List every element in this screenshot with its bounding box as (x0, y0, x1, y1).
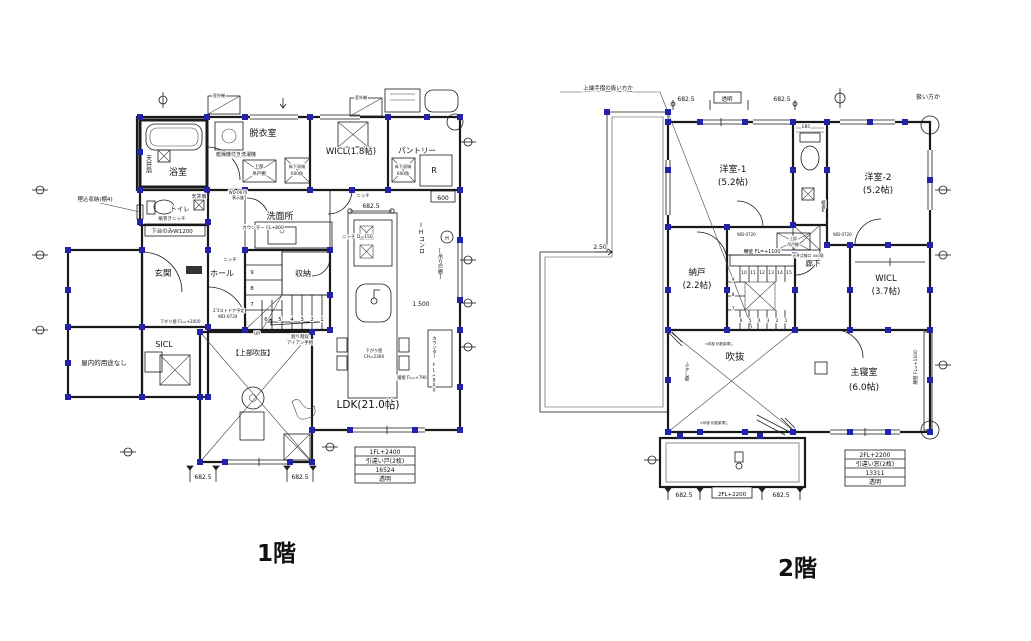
plan-drawing: 1FL+2400 引違い戸(2枚) 16524 透明 浴室 天井扇 脱衣室 乾燥… (0, 0, 1031, 641)
caption-floor2: 2階 (778, 549, 817, 583)
note-counter-kitchen: カウンター FL+800 (431, 336, 436, 394)
svg-text:14: 14 (777, 270, 783, 276)
label-wicl2-name: WICL (875, 274, 897, 284)
svg-text:5: 5 (278, 317, 282, 323)
kitchen-sink (356, 284, 391, 322)
dim-682-top2f-left: 682.5 (677, 96, 694, 103)
label-west1-name: 洋室-1 (720, 163, 747, 175)
dim-682-bot2f-right: 682.5 (772, 492, 789, 499)
label-hall: ホール (210, 269, 234, 278)
note-floor-storage-3: 床下収納 (395, 163, 412, 170)
svg-text:15: 15 (786, 270, 792, 276)
label-wicl-1f: WICL(1.8帖) (326, 146, 376, 157)
note-hanging-wall-entrance: 下がり壁 FL=+2000 (160, 318, 201, 325)
note-stair-rail: アイアン手摺 (287, 339, 314, 346)
dim-682-bottom-right: 682.5 (291, 474, 308, 481)
note-upper-cab-2: 吊戸棚 (252, 170, 266, 177)
entrance-step (186, 266, 202, 274)
note-hanging-shelf: [吊り戸棚] (437, 248, 443, 280)
note-ih-stove: IHコンロ (418, 222, 425, 254)
svg-text:1: 1 (320, 317, 324, 323)
window-table-2f-row2: 引違い窓(2枚) (856, 460, 895, 468)
label-ldk: LDK(21.0帖) (337, 398, 400, 411)
floor2-plan: 2FL+2200 引違い窓(2枚) 13311 透明 洋室-1 (5.2帖) 洋… (540, 84, 951, 500)
dim-682-top2f-right: 682.5 (773, 96, 790, 103)
label-master-name: 主寝室 (850, 366, 877, 378)
window-table-2f: 2FL+2200 引違い窓(2枚) 13311 透明 (845, 450, 905, 486)
dim-682-top-1f: 682.5 (362, 203, 379, 210)
window-table-1f-row3: 16524 (375, 467, 394, 474)
note-slope: 2.50 (593, 244, 607, 251)
svg-text:9: 9 (732, 277, 735, 283)
svg-text:3: 3 (300, 317, 304, 323)
label-dressing: 脱衣室 (249, 127, 276, 139)
note-hood: H (445, 236, 449, 242)
note-upper-cab2f-2: 吊戸棚 (787, 242, 799, 247)
note-niche-hall: ニッチ (223, 257, 237, 263)
note-handling: 扱い方か (916, 93, 940, 101)
dim-marks-1f (187, 191, 455, 482)
svg-text:9: 9 (250, 270, 254, 276)
washer-pan (215, 122, 243, 150)
window-table-1f-row4: 透明 (379, 475, 391, 483)
label-void-2f: 吹抜 (725, 351, 745, 363)
door-arc-west1 (737, 201, 763, 227)
label-ceiling-fan-toilet: 天井扇 (191, 193, 206, 200)
door-arc-nando (697, 232, 727, 262)
label-toilet-1f: トイレ (170, 205, 190, 213)
window-table-1f-row1: 1FL+2400 (370, 449, 401, 456)
label-washroom: 洗面所 (266, 210, 293, 222)
svg-text:13: 13 (768, 270, 774, 276)
label-west2-size: (5.2帖) (863, 184, 893, 196)
note-low-wall-790: 腰壁 FL=+790 (397, 374, 427, 381)
svg-text:8: 8 (732, 292, 735, 298)
note-inspection: 天井点検口 450角 (792, 253, 823, 258)
dim-682-bot2f-left: 682.5 (675, 492, 692, 499)
stairs-1f (245, 258, 330, 330)
svg-text:4: 4 (290, 317, 294, 323)
label-no-use: 屋内的用途なし (81, 358, 127, 367)
window-table-1f-row2: 引違い戸(2枚) (366, 457, 405, 465)
toilet-tank-2f (800, 133, 820, 142)
note-door-plan-1: 2'3ストドア予定 (213, 307, 245, 314)
note-hanging-wall-k2: CH=2300 (364, 354, 385, 359)
note-wd0720-a: WD-0720 (737, 232, 756, 237)
svg-text:6: 6 (740, 318, 743, 324)
stair-numbers-2f: 10 11 12 13 14 15 9 8 7 6 5 4 3 2 1 (732, 270, 792, 324)
note-paper-holder: 紙巻K (820, 199, 826, 214)
note-door-lock-2: 表示錠 (232, 194, 244, 200)
note-recessed-storage: 埋込収納(棚4) (77, 195, 112, 203)
label-sicl: SICL (155, 340, 173, 349)
note-door-plan-2: WD-0724 (218, 314, 238, 319)
window-table-1f: 1FL+2400 引違い戸(2枚) 16524 透明 (355, 447, 415, 483)
dim-600: 600 (437, 195, 449, 202)
leader-line (560, 92, 752, 328)
dim-1500: 1.500 (412, 301, 429, 308)
label-fridge: R (431, 166, 437, 175)
note-stair-type: 廻り階段 (291, 333, 309, 340)
door-arc-west2 (855, 219, 881, 245)
label-wicl2-size: (3.7帖) (872, 286, 901, 297)
note-leader: 上端手摺の扱い方か (583, 84, 633, 92)
svg-text:8: 8 (250, 286, 254, 292)
svg-text:7: 7 (732, 306, 735, 312)
note-lower-cabinet: 下台のみW1200 (151, 227, 193, 235)
hall-door-arc (208, 287, 246, 325)
note-outdoor-unit-2: 室外機 (355, 94, 367, 100)
svg-text:10: 10 (741, 270, 747, 276)
label-corridor: 廊下 (806, 258, 821, 268)
label-west2-name: 洋室-2 (865, 171, 892, 183)
label-entrance: 玄関 (154, 268, 171, 279)
label-nando-size: (2.2帖) (683, 280, 712, 291)
note-paper-niche: 紙巻きニッチ (159, 215, 186, 222)
note-counter-wash: カウンター FL+800 (242, 224, 284, 231)
note-fl2200-box: 2FL+2200 (718, 492, 747, 498)
note-outdoor-unit-1: 室外機 (213, 92, 225, 98)
entrance-porch (68, 250, 142, 397)
label-storage-1f: 収納 (295, 268, 311, 278)
svg-text:7: 7 (250, 302, 254, 308)
kitchen-island (348, 213, 397, 398)
door-arc-master (835, 330, 863, 358)
label-nando-name: 納戸 (688, 267, 705, 278)
balcony (660, 438, 805, 487)
svg-text:11: 11 (750, 270, 756, 276)
note-x-mark-1: ×印部 化粧梁現し (705, 341, 734, 346)
note-hanging-wall-k1: 下がり壁 (366, 347, 383, 354)
label-west1-size: (5.2帖) (718, 176, 748, 188)
note-upper-cab-1: 上部 (255, 163, 264, 170)
label-master-size: (6.0帖) (849, 381, 879, 393)
svg-text:1: 1 (785, 318, 788, 324)
label-pantry: パントリー (398, 146, 436, 155)
svg-text:2: 2 (776, 318, 779, 324)
svg-text:2: 2 (310, 317, 314, 323)
toilet-bowl-2f (801, 146, 819, 170)
note-low-wall-master: 腰壁 FL=+1100 (912, 350, 919, 385)
window-table-2f-row1: 2FL+2200 (860, 452, 891, 459)
note-floor-storage-2: 600角 (291, 170, 303, 177)
label-ceiling-fan-bath: 天井扇 (145, 155, 152, 174)
note-fukashi-wall: ふかし壁 (684, 362, 689, 382)
note-low-wall-stair: 腰壁 FL=+1100 (744, 248, 781, 255)
label-upper-void: 【上部吹抜】 (232, 348, 274, 357)
floor1-plan: 1FL+2400 引違い戸(2枚) 16524 透明 浴室 天井扇 脱衣室 乾燥… (32, 89, 476, 483)
note-niche-kitchen: ニッチ (356, 193, 370, 199)
window-table-2f-row3: 13311 (865, 470, 884, 477)
note-x-mark-2: ×印部 化粧梁現し (700, 420, 729, 425)
note-upper-cab2f-1: 上部 (789, 236, 797, 241)
note-clear-top: 透明 (721, 95, 733, 103)
note-eb5: EB5 (802, 124, 810, 129)
svg-text:4: 4 (758, 318, 761, 324)
note-up: UP (254, 331, 260, 337)
svg-text:5: 5 (749, 318, 752, 324)
note-wd0720-b: WD-0720 (833, 232, 852, 237)
floor-plan-sheet: 1FL+2400 引違い戸(2枚) 16524 透明 浴室 天井扇 脱衣室 乾燥… (0, 0, 1031, 641)
window-table-2f-row4: 透明 (869, 478, 881, 486)
svg-text:6: 6 (264, 317, 268, 323)
note-floor-storage-1: 床下収納 (289, 163, 306, 170)
note-washer: 乾燥機付き洗濯機 (216, 151, 256, 158)
note-niche-d150: ニッチ D=150 (342, 234, 373, 240)
svg-text:12: 12 (759, 270, 765, 276)
note-floor-storage-4: 600角 (397, 170, 409, 177)
lower-roof (540, 112, 668, 412)
label-bath: 浴室 (169, 166, 187, 178)
caption-floor1: 1階 (257, 534, 296, 568)
dim-682-bottom-left: 682.5 (194, 474, 211, 481)
svg-text:3: 3 (767, 318, 770, 324)
